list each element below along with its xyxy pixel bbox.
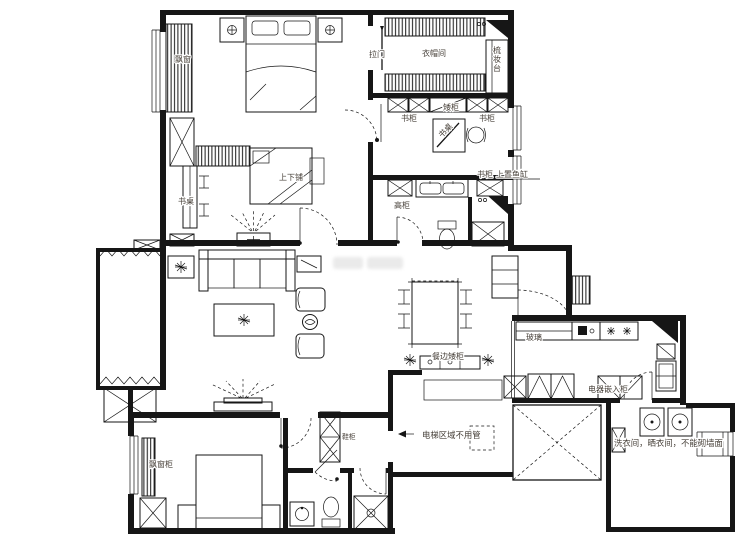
- label-sideboard: 餐边矮柜: [432, 351, 464, 361]
- floor-plan-drawing: 飘窗 拉门 衣帽间 梳妆台 书柜 矮柜 书桌 书柜 书柜 上置鱼缸 高柜 书桌 …: [0, 0, 740, 540]
- label-desk-kids: 书桌: [178, 196, 194, 206]
- label-shoe-cabinet: 鞋柜: [342, 432, 356, 441]
- label-elevator-note: 电梯区域不用管: [422, 430, 481, 440]
- label-low-cabinet: 矮柜: [443, 102, 459, 112]
- label-appliance-cabinet: 电器嵌入柜: [588, 384, 628, 394]
- closet-wardrobe-bottom: [385, 74, 485, 91]
- label-bookcase-left: 书柜: [401, 113, 417, 123]
- kids-wardrobe: [196, 146, 250, 166]
- closet-wardrobe-top: [385, 18, 485, 36]
- label-dressing-table: 梳妆台: [493, 45, 502, 73]
- bath-divider: [468, 197, 472, 246]
- label-bookcase-small: 书柜: [477, 169, 493, 179]
- floor-plan-page: 飘窗 拉门 衣帽间 梳妆台 书柜 矮柜 书桌 书柜 书柜 上置鱼缸 高柜 书桌 …: [0, 0, 740, 540]
- nook-cabinet: [572, 276, 590, 304]
- label-sliding-door: 拉门: [369, 49, 385, 59]
- bay-window-seat: [166, 24, 192, 112]
- label-laundry-note: 洗衣间，晒衣间，不能砌墙面: [614, 438, 723, 448]
- label-fish-tank: 上置鱼缸: [496, 169, 528, 179]
- label-bookcase-right: 书柜: [479, 113, 495, 123]
- label-walk-in-closet: 衣帽间: [422, 48, 446, 58]
- label-bay-window-top: 飘窗: [175, 54, 191, 64]
- label-bay-window-cabinet: 飘窗柜: [149, 459, 173, 469]
- label-glass: 玻璃: [526, 332, 542, 342]
- label-bunk-bed: 上下铺: [279, 172, 303, 182]
- watermark: [333, 257, 403, 269]
- label-tall-cabinet: 高柜: [394, 200, 410, 210]
